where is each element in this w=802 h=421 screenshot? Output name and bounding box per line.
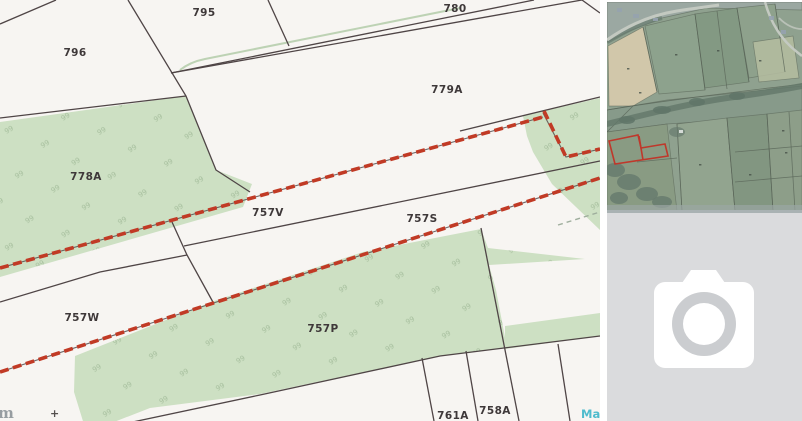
parcel-label-796: 796: [63, 47, 86, 59]
aerial-photo-thumbnail[interactable]: [607, 2, 802, 213]
aerial-haze: [607, 2, 802, 213]
cadastral-map-image: 99 99: [0, 0, 600, 421]
watermark-fragment: Ma: [581, 407, 600, 421]
aerial-photo-svg: [607, 2, 802, 213]
photo-placeholder: [607, 213, 802, 421]
parcel-green-south-band: [505, 313, 600, 349]
parcel-label-757S: 757S: [406, 213, 437, 225]
fragment-bottom-left: m: [0, 404, 14, 421]
parcel-label-761A: 761A: [437, 410, 469, 421]
parcel-label-757V: 757V: [252, 207, 284, 219]
parcel-label-758A: 758A: [479, 405, 511, 417]
parcel-label-779A: 779A: [431, 84, 463, 96]
camera-icon: [652, 265, 758, 369]
parcel-label-780: 780: [443, 3, 466, 15]
parcel-label-778A: 778A: [70, 171, 102, 183]
map-svg: 99 99: [0, 0, 600, 421]
media-sidebar: [607, 0, 802, 421]
parcel-label-795: 795: [192, 7, 215, 19]
camera-lens-center: [683, 303, 725, 345]
parcel-label-757P: 757P: [307, 323, 338, 335]
camera-hump: [682, 270, 725, 283]
hedge-line: [180, 8, 460, 70]
parcel-label-757W: 757W: [64, 312, 99, 324]
fragment-bottom-left-mark: +: [50, 407, 59, 420]
property-media-panel: 99 99: [0, 0, 802, 421]
